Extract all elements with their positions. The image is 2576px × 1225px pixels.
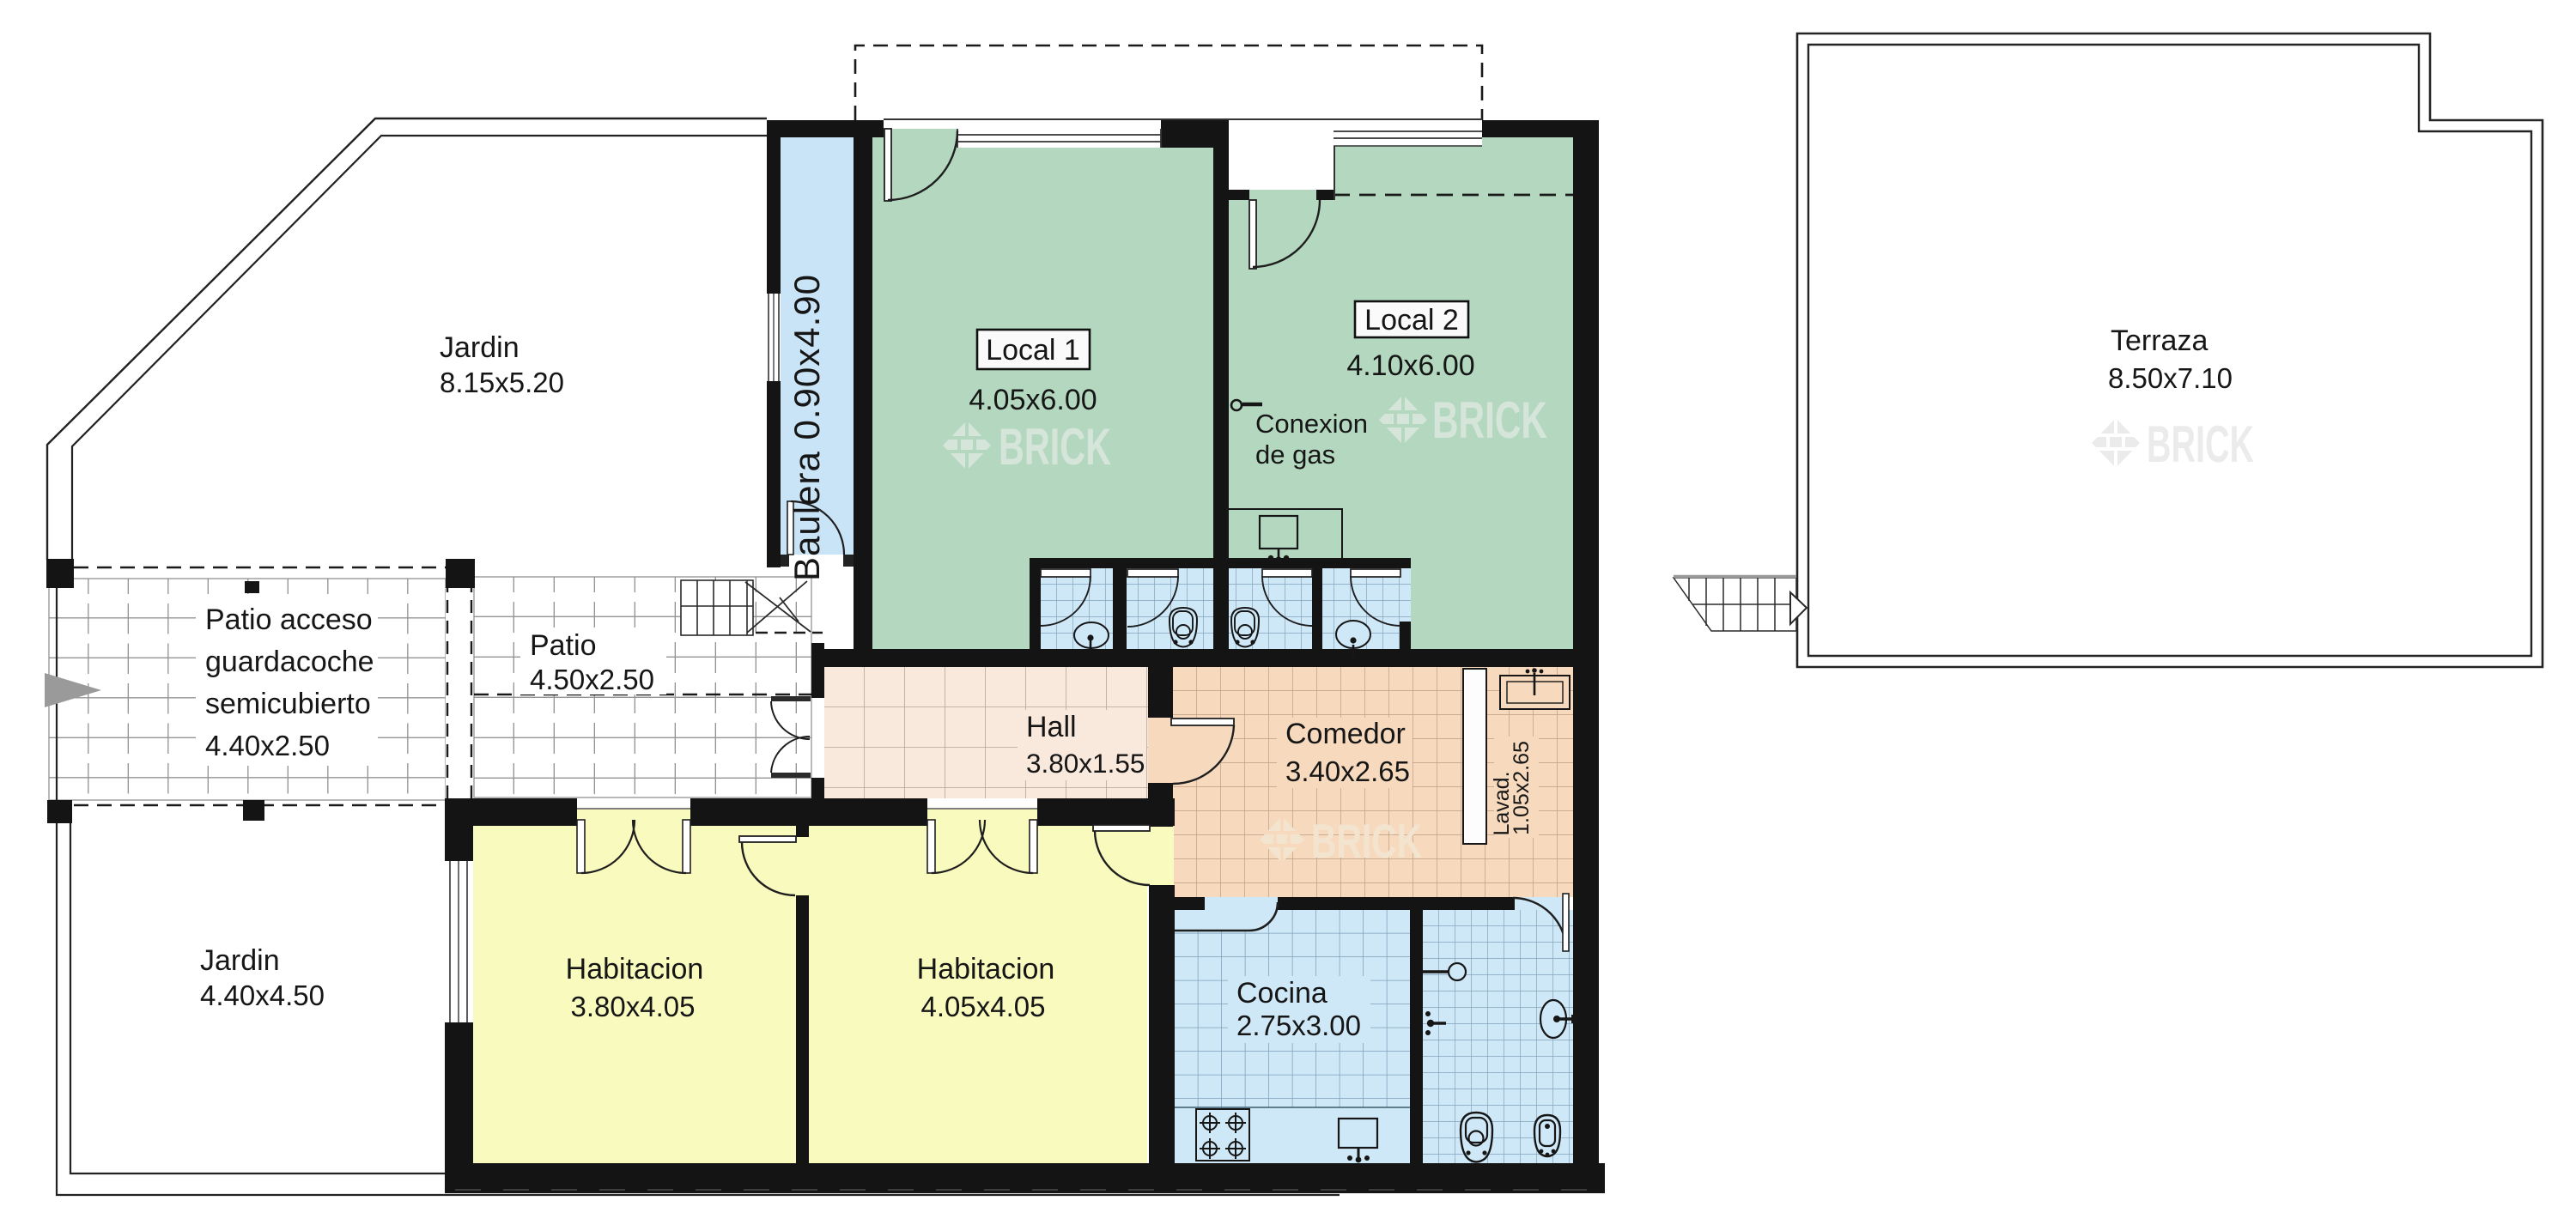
svg-text:BRICK: BRICK	[999, 418, 1111, 476]
svg-text:1.05x2.65: 1.05x2.65	[1510, 741, 1534, 835]
svg-text:Hall: Hall	[1026, 711, 1077, 743]
svg-text:3.40x2.65: 3.40x2.65	[1285, 755, 1410, 787]
svg-text:Conexion: Conexion	[1255, 409, 1368, 439]
svg-text:BRICK: BRICK	[1432, 391, 1547, 449]
svg-text:BRICK: BRICK	[1311, 814, 1422, 868]
svg-text:Comedor: Comedor	[1285, 718, 1406, 750]
svg-text:4.50x2.50: 4.50x2.50	[530, 664, 654, 695]
svg-text:semicubierto: semicubierto	[205, 688, 371, 720]
svg-text:Patio acceso: Patio acceso	[205, 603, 373, 636]
svg-text:4.05x6.00: 4.05x6.00	[969, 384, 1097, 416]
svg-text:BRICK: BRICK	[2147, 415, 2254, 473]
svg-text:4.10x6.00: 4.10x6.00	[1346, 349, 1474, 382]
svg-text:Patio: Patio	[530, 629, 597, 662]
svg-text:Habitacion: Habitacion	[566, 953, 704, 985]
svg-text:Baulera 0.90x4.90: Baulera 0.90x4.90	[787, 274, 827, 581]
svg-text:Local 1: Local 1	[986, 334, 1080, 367]
svg-text:4.05x4.05: 4.05x4.05	[921, 991, 1046, 1022]
svg-text:guardacoche: guardacoche	[205, 646, 374, 678]
svg-text:Jardin: Jardin	[200, 944, 280, 977]
svg-text:3.80x4.05: 3.80x4.05	[571, 991, 696, 1022]
svg-text:Cocina: Cocina	[1236, 977, 1327, 1010]
svg-text:4.40x4.50: 4.40x4.50	[200, 979, 325, 1011]
svg-text:Local 2: Local 2	[1364, 304, 1459, 337]
svg-text:2.75x3.00: 2.75x3.00	[1236, 1010, 1361, 1041]
svg-text:Jardin: Jardin	[440, 331, 519, 364]
svg-text:8.15x5.20: 8.15x5.20	[440, 367, 564, 398]
svg-text:de gas: de gas	[1255, 440, 1335, 470]
svg-text:8.50x7.10: 8.50x7.10	[2108, 362, 2233, 394]
svg-text:4.40x2.50: 4.40x2.50	[205, 730, 330, 761]
svg-text:3.80x1.55: 3.80x1.55	[1026, 748, 1145, 779]
svg-text:Habitacion: Habitacion	[917, 953, 1055, 985]
svg-text:Terraza: Terraza	[2111, 324, 2208, 357]
